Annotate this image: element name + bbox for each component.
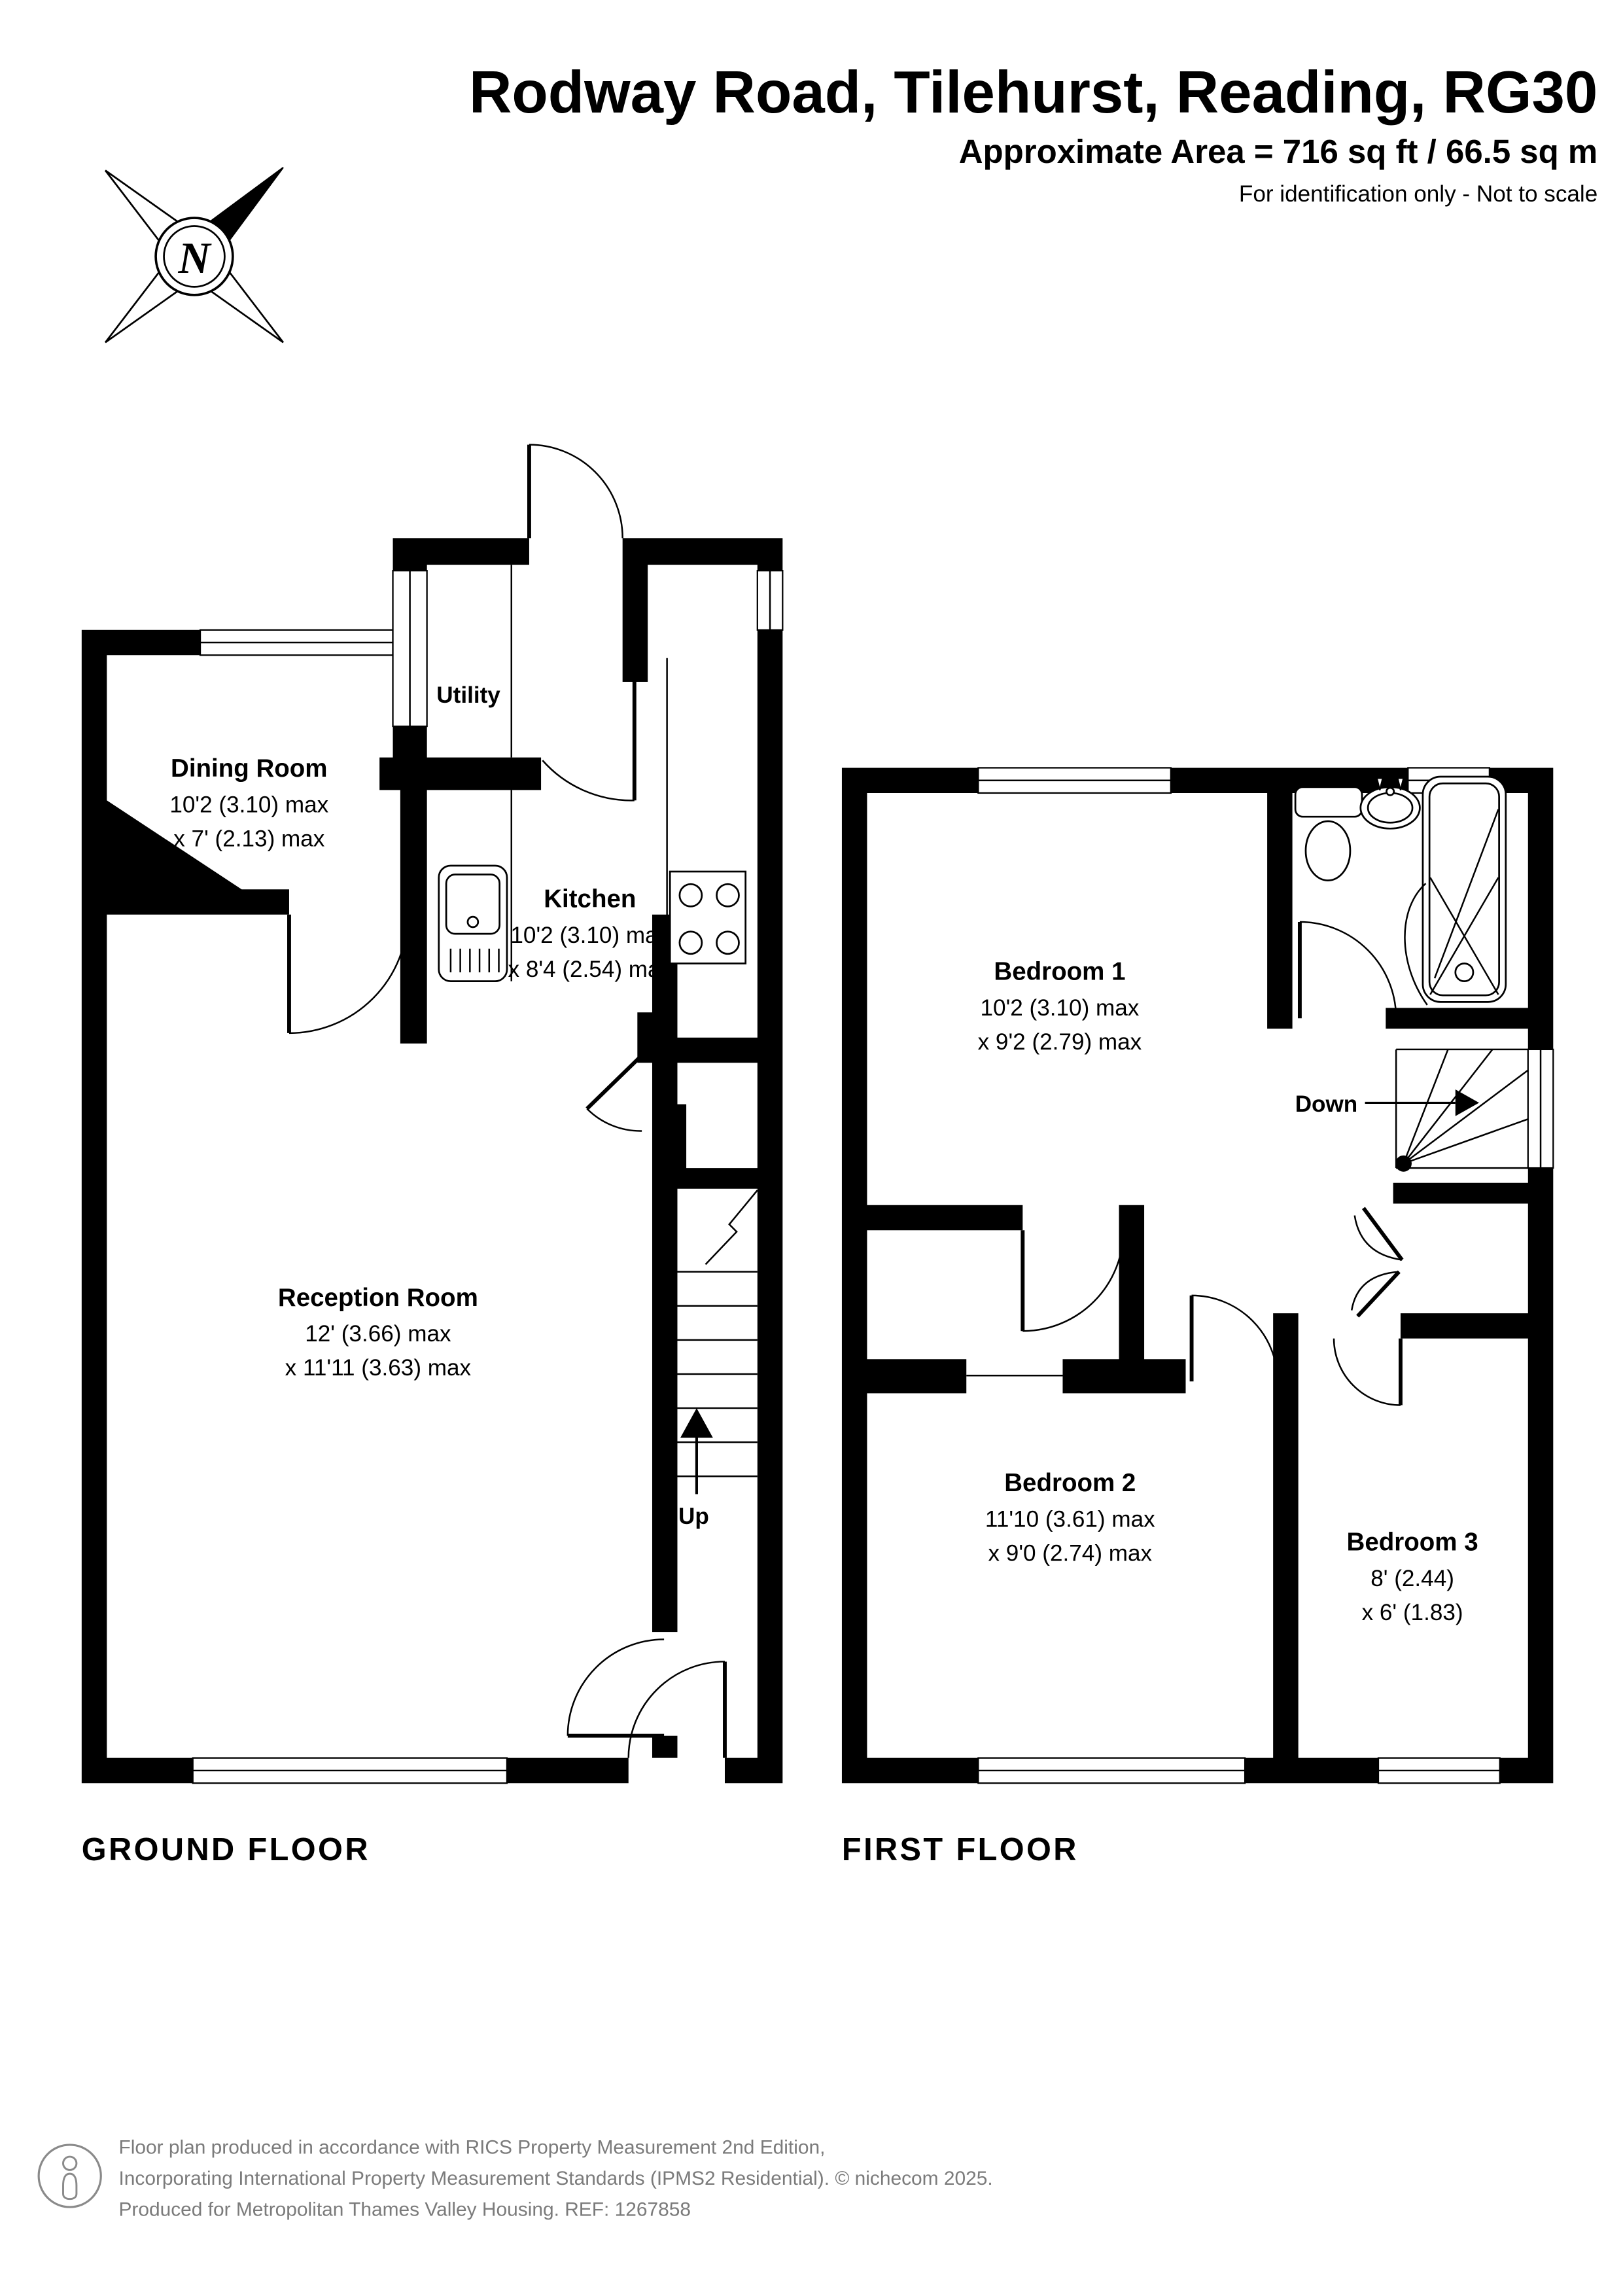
bedroom1-door (1022, 1230, 1123, 1331)
compass-north-label: N (177, 233, 212, 283)
stairs-up: Up (677, 1190, 757, 1529)
svg-text:11'10 (3.61) max: 11'10 (3.61) max (985, 1506, 1155, 1532)
svg-text:x 8'4 (2.54) max: x 8'4 (2.54) max (508, 957, 672, 982)
floorplan-canvas: Rodway Road, Tilehurst, Reading, RG30 Ap… (0, 0, 1623, 2296)
header: Rodway Road, Tilehurst, Reading, RG30 Ap… (469, 60, 1597, 207)
window (393, 571, 427, 726)
window (758, 571, 783, 630)
svg-text:x 11'11 (3.63) max: x 11'11 (3.63) max (285, 1355, 472, 1381)
kitchen-hall-door (587, 1055, 642, 1131)
window (1378, 1758, 1500, 1784)
dining-reception-door (289, 915, 408, 1033)
stair-newel (1395, 1156, 1412, 1172)
lobby-kitchen-door (542, 682, 634, 800)
svg-text:x 9'2 (2.79) max: x 9'2 (2.79) max (978, 1029, 1142, 1055)
up-arrow-head (680, 1408, 713, 1438)
first-floor-caption: FIRST FLOOR (842, 1832, 1079, 1867)
svg-text:10'2 (3.10) max: 10'2 (3.10) max (981, 995, 1140, 1021)
toilet-icon (1295, 787, 1362, 881)
stairs-down: Down (1295, 1050, 1528, 1172)
svg-text:Bedroom 3: Bedroom 3 (1347, 1528, 1478, 1557)
kitchen-sink-icon (439, 866, 507, 981)
room-label-utility: Utility (436, 682, 500, 708)
bedroom2-door (1192, 1296, 1278, 1381)
page-title: Rodway Road, Tilehurst, Reading, RG30 (469, 60, 1597, 126)
floorplan-page: { "header": { "title": "Rodway Road, Til… (0, 0, 1623, 2296)
ground-walls (82, 538, 783, 1783)
footer-line-3: Produced for Metropolitan Thames Valley … (118, 2199, 691, 2221)
svg-text:8' (2.44): 8' (2.44) (1370, 1566, 1454, 1591)
scale-note: For identification only - Not to scale (1239, 181, 1597, 207)
window (193, 1758, 507, 1784)
area-text: Approximate Area = 716 sq ft / 66.5 sq m (959, 133, 1598, 170)
svg-text:10'2 (3.10) max: 10'2 (3.10) max (169, 792, 328, 817)
svg-text:10'2 (3.10) max: 10'2 (3.10) max (510, 923, 669, 948)
room-label-bedroom3: Bedroom 3 8' (2.44) x 6' (1.83) (1347, 1528, 1478, 1625)
down-arrow-head (1456, 1089, 1479, 1116)
room-label-dining: Dining Room 10'2 (3.10) max x 7' (2.13) … (169, 754, 328, 851)
bathroom-door (1300, 922, 1396, 1018)
room-label-kitchen: Kitchen 10'2 (3.10) max x 8'4 (2.54) max (508, 885, 672, 981)
svg-text:Bedroom 2: Bedroom 2 (1004, 1469, 1136, 1497)
svg-text:x 6' (1.83): x 6' (1.83) (1362, 1600, 1463, 1625)
svg-text:Dining Room: Dining Room (171, 754, 328, 783)
svg-text:Bedroom 1: Bedroom 1 (994, 957, 1125, 985)
svg-text:x 9'0 (2.74) max: x 9'0 (2.74) max (988, 1540, 1152, 1566)
window (978, 768, 1170, 793)
stairs-up-label: Up (678, 1504, 709, 1529)
room-label-bedroom1: Bedroom 1 10'2 (3.10) max x 9'2 (2.79) m… (978, 957, 1142, 1054)
cupboard-doors (1352, 1208, 1402, 1316)
rear-door (529, 445, 623, 539)
footer-line-1: Floor plan produced in accordance with R… (118, 2137, 825, 2159)
footer-line-2: Incorporating International Property Mea… (118, 2168, 992, 2189)
svg-text:12' (3.66) max: 12' (3.66) max (305, 1321, 451, 1347)
hob-icon (670, 872, 746, 963)
ground-floor-plan: Up Utility Dining Room 10'2 (3.10) max x (82, 445, 783, 1867)
room-label-reception: Reception Room 12' (3.66) max x 11'11 (3… (278, 1284, 478, 1381)
svg-text:x 7' (2.13) max: x 7' (2.13) max (173, 826, 325, 852)
compass-icon: N (105, 168, 283, 342)
ground-floor-caption: GROUND FLOOR (82, 1832, 370, 1867)
footer-logo-icon (39, 2145, 101, 2207)
hall-reception-door (568, 1639, 664, 1735)
first-floor-plan: Down Bedroom 1 10'2 (3.10) (842, 768, 1553, 1867)
footer: Floor plan produced in accordance with R… (39, 2137, 993, 2221)
window (978, 1758, 1245, 1784)
svg-text:Reception Room: Reception Room (278, 1284, 478, 1312)
window (200, 630, 393, 656)
room-label-bedroom2: Bedroom 2 11'10 (3.61) max x 9'0 (2.74) … (985, 1469, 1155, 1566)
svg-text:Kitchen: Kitchen (544, 885, 636, 913)
window (1528, 1050, 1554, 1168)
bedroom3-door (1334, 1339, 1401, 1405)
stairs-down-label: Down (1295, 1091, 1358, 1117)
